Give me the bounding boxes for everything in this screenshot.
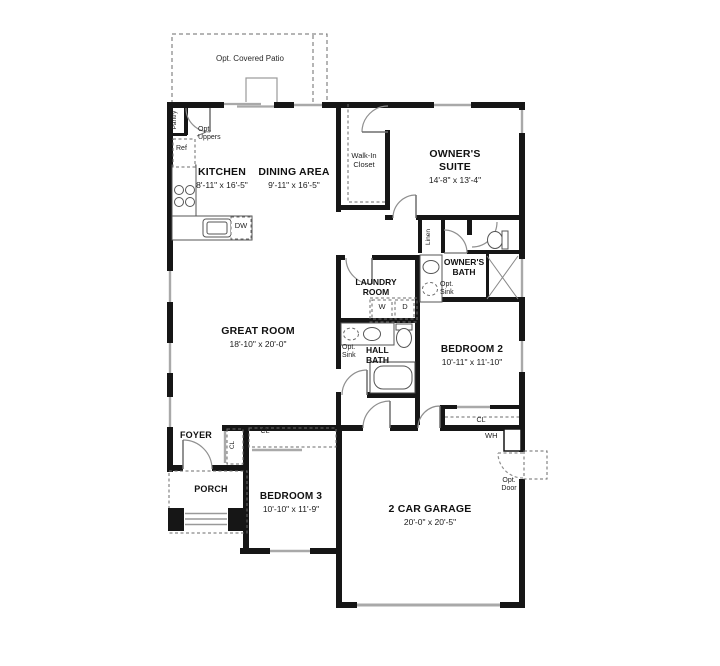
room-great-room-dims: 18'-10" x 20'-0" [214, 339, 302, 349]
water-heater-label: WH [485, 432, 498, 441]
room-dining-dims: 9'-11" x 16'-5" [251, 180, 337, 190]
opt-door-box [524, 451, 547, 479]
opt-uppers-label: Opt. Uppers [198, 126, 221, 142]
owners-suite-door [393, 195, 416, 218]
closet-foyer-label: CL [229, 425, 237, 465]
opt-door-label: Opt. Door [496, 477, 522, 493]
closet-bedroom3-label: CL [256, 428, 274, 436]
walkin-closet-label: Walk-In Closet [341, 152, 387, 169]
porch-details [168, 471, 247, 533]
room-hall-bath-name: HALL BATH [366, 345, 406, 365]
toilet-bowl [488, 232, 503, 249]
cooktop-burner [186, 198, 195, 207]
room-foyer-name: FOYER [172, 430, 220, 440]
room-garage-name: 2 CAR GARAGE [383, 503, 477, 516]
room-owners-suite-name: OWNER'S SUITE [413, 148, 497, 173]
dryer-label: D [397, 303, 413, 312]
dishwasher-label: DW [231, 222, 251, 231]
linen-door [444, 230, 467, 253]
room-owners-suite-dims: 14'-8" x 13'-4" [413, 175, 497, 185]
room-great-room-name: GREAT ROOM [214, 325, 302, 338]
room-dining-name: DINING AREA [251, 166, 337, 179]
front-door [183, 440, 212, 469]
room-porch-name: PORCH [184, 484, 238, 494]
cooktop-burner [175, 198, 184, 207]
opt-sink-hall-label: Opt. Sink [342, 344, 356, 360]
washer-label: W [374, 303, 390, 312]
room-owners-bath-name: OWNER'S BATH [426, 257, 502, 277]
room-bedroom3-dims: 10'-10" x 11'-9" [249, 504, 333, 514]
bedroom2-door [418, 406, 440, 428]
water-heater [504, 429, 521, 451]
refrigerator-label: Ref [176, 145, 187, 153]
floor-plan-canvas: Opt. Covered Patio KITCHEN 8'-11" x 16'-… [0, 0, 720, 666]
toilet-tank [502, 231, 508, 249]
opt-sink-owners-label: Opt. Sink [440, 281, 454, 297]
closet-bedroom2-label: CL [472, 417, 490, 425]
room-garage-dims: 20'-0" x 20'-5" [383, 517, 477, 527]
room-bedroom2-name: BEDROOM 2 [430, 344, 514, 357]
linen-label: Linen [425, 217, 433, 257]
floor-plan-drawing [0, 0, 720, 666]
garage-entry-door [363, 401, 390, 428]
patio-label: Opt. Covered Patio [186, 54, 314, 64]
refrigerator [173, 139, 195, 167]
room-bedroom3-name: BEDROOM 3 [249, 491, 333, 504]
room-bedroom2-dims: 10'-11" x 11'-10" [430, 357, 514, 367]
porch-pillar [228, 508, 244, 531]
opt-sink [344, 328, 359, 340]
walkin-closet-door [362, 106, 388, 132]
hall-bath-door [342, 370, 367, 395]
garage-details [504, 429, 521, 451]
porch-pillar [168, 508, 184, 531]
patio-stoop [246, 78, 277, 103]
room-laundry-name: LAUNDRY ROOM [338, 277, 414, 297]
vanity-sink [364, 328, 381, 341]
opt-sink [423, 283, 438, 296]
pantry-label: Pantry [171, 100, 179, 140]
